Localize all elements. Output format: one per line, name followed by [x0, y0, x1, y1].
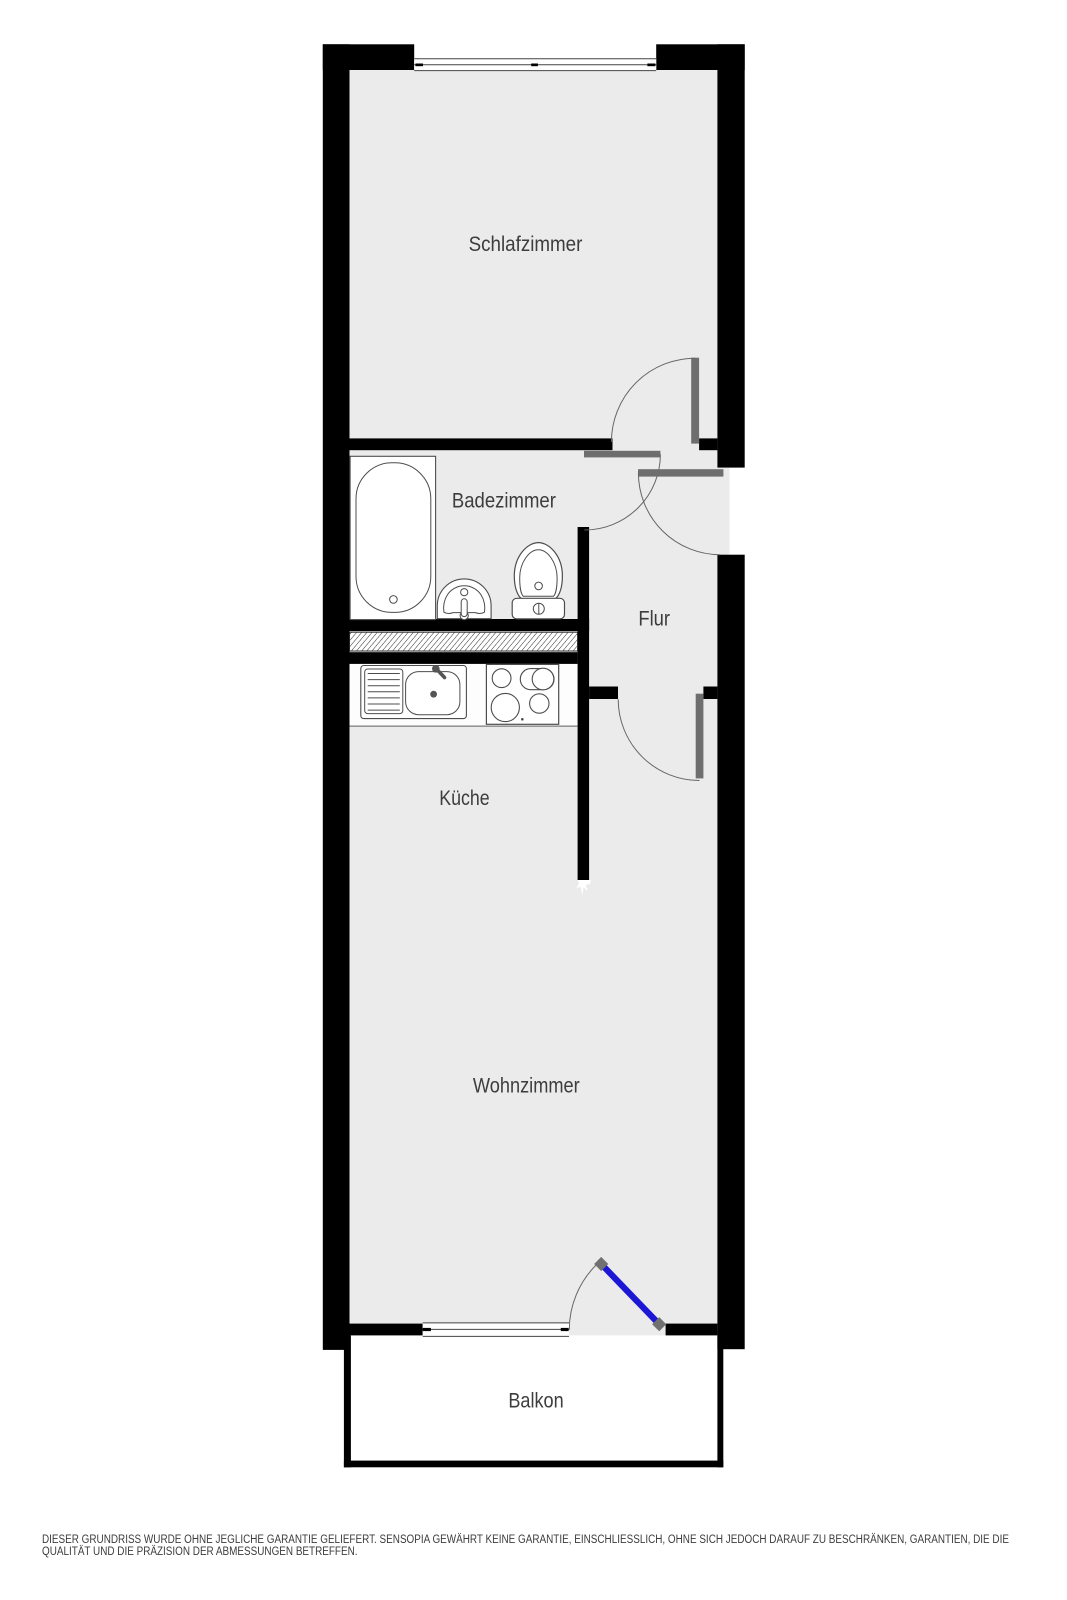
svg-text:Küche: Küche — [439, 786, 489, 810]
svg-text:Balkon: Balkon — [508, 1389, 563, 1413]
svg-text:Schlafzimmer: Schlafzimmer — [469, 232, 583, 256]
svg-text:Badezimmer: Badezimmer — [452, 489, 556, 513]
svg-text:Wohnzimmer: Wohnzimmer — [473, 1074, 580, 1098]
svg-text:Flur: Flur — [638, 607, 670, 631]
